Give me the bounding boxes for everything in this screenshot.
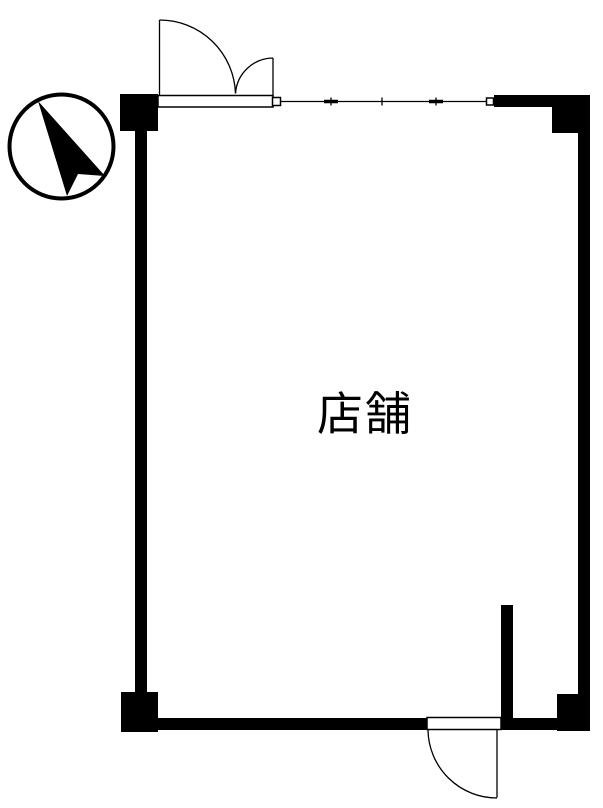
entrance-door-swing-small [236,58,274,94]
floor-plan-canvas [0,0,603,808]
window-end-cap [487,98,494,105]
bottom-left-pillar [121,692,158,732]
bottom-wall-left [158,718,427,730]
entrance-door-frame [158,96,273,108]
entrance-door-stop [273,98,281,106]
back-door-swing [428,730,497,798]
left-wall [135,131,147,692]
north-arrow-needle-icon [38,101,105,196]
room-label: 店舗 [317,386,417,442]
entrance-door-swing-large [160,20,236,94]
top-wall-right [494,95,590,107]
back-door-threshold [427,718,501,730]
floor-plan: 店舗 [0,0,603,808]
north-arrow [10,95,114,199]
right-wall [578,133,590,694]
bottom-right-pillar [557,694,590,731]
bottom-wall-right [513,718,559,730]
top-left-pillar [120,94,158,131]
partition-wall [501,605,513,730]
